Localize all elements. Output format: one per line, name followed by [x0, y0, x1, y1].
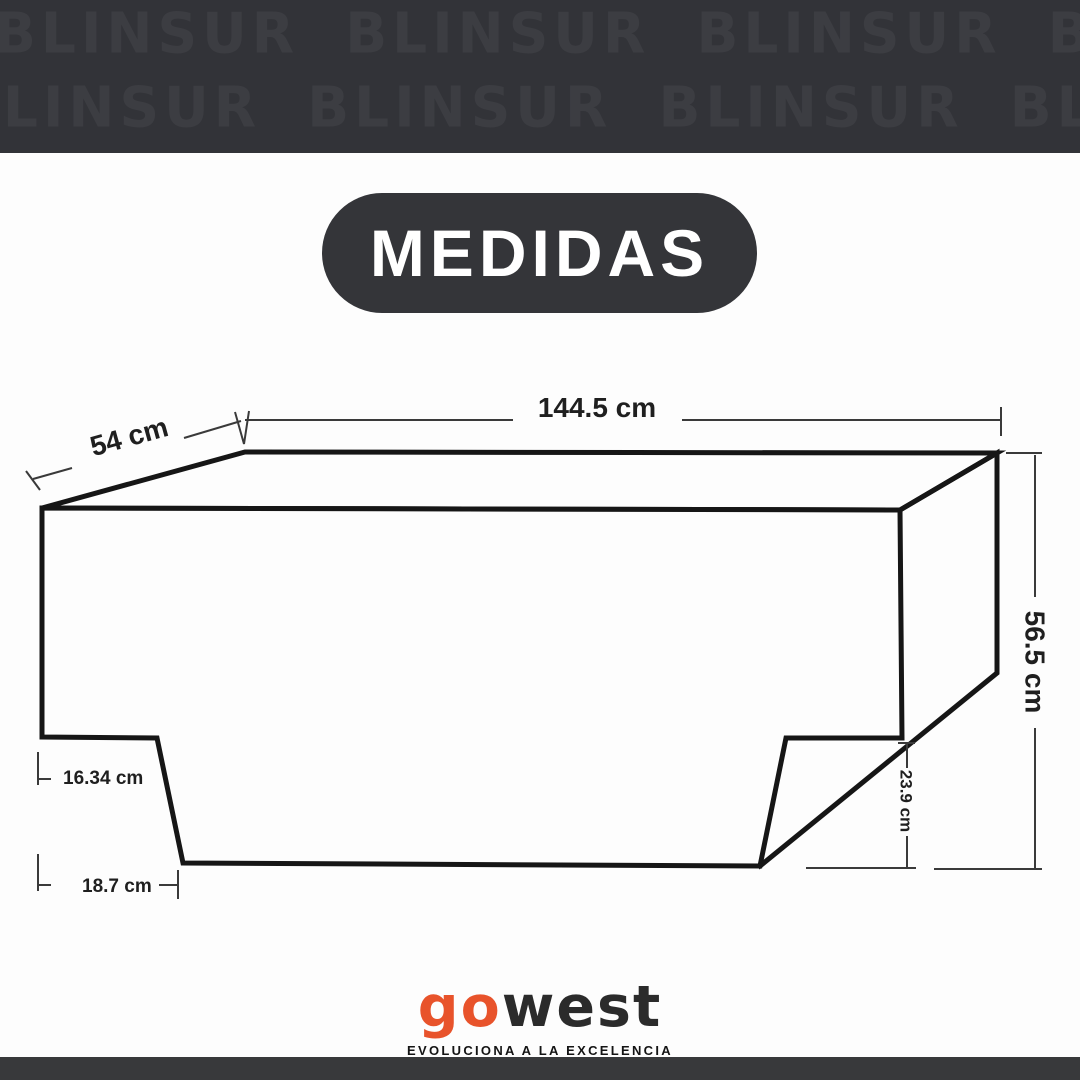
logo-go: go	[418, 974, 502, 1040]
dimension-height: 56.5 cm	[934, 453, 1051, 869]
footer-band	[0, 1057, 1080, 1080]
page: BLINSUR BLINSUR BLINSUR BLINSUR BLINSUR …	[0, 0, 1080, 1080]
label-height: 56.5 cm	[1020, 611, 1051, 714]
tick-left-v	[235, 411, 249, 444]
label-notch: 23.9 cm	[897, 770, 916, 832]
tick-left	[26, 471, 40, 490]
logo-wordmark: gowest	[0, 979, 1080, 1036]
logo-west: west	[502, 974, 663, 1040]
label-depth: 54 cm	[87, 411, 172, 462]
dimension-left-upper: 16.34 cm	[38, 752, 143, 789]
label-top-width: 144.5 cm	[538, 392, 656, 423]
box-front-face	[42, 508, 902, 866]
dimension-left-lower: 18.7 cm	[38, 854, 178, 899]
label-left-lower: 18.7 cm	[82, 876, 152, 897]
box-top-face	[42, 452, 997, 510]
logo-tagline: EVOLUCIONA A LA EXCELENCIA	[0, 1043, 1080, 1058]
box-outline	[42, 452, 997, 866]
dimension-diagram: 144.5 cm 54 cm 56.5 cm 23.9 cm	[0, 0, 1080, 1080]
label-left-upper: 16.34 cm	[63, 768, 143, 789]
footer-logo: gowest EVOLUCIONA A LA EXCELENCIA	[0, 979, 1080, 1058]
dimension-top-width: 144.5 cm	[235, 392, 1001, 444]
dimension-notch: 23.9 cm	[806, 743, 916, 868]
